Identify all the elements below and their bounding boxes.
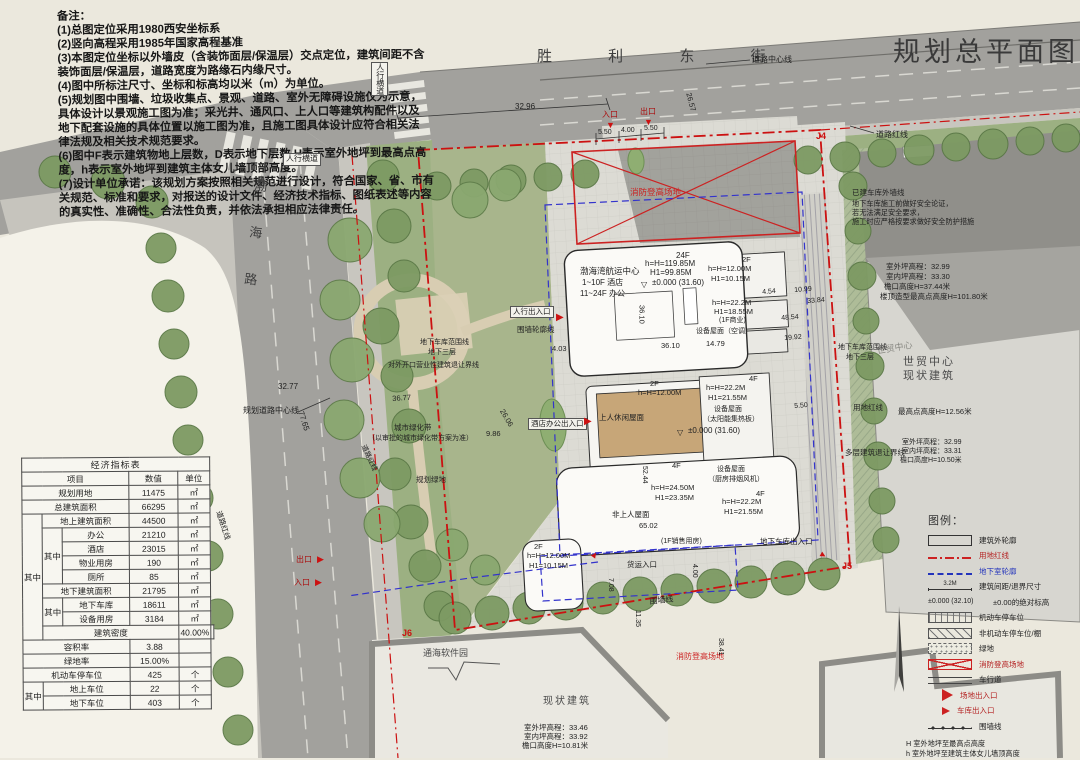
- tree-icon: [409, 550, 441, 582]
- econ-row-value: 3.88: [130, 639, 179, 653]
- econ-row-label: 机动车停车位: [23, 667, 130, 682]
- econ-row-label: 容积率: [23, 639, 130, 654]
- econ-qizhong: 其中: [22, 514, 43, 640]
- econ-row-unit: ㎡: [178, 485, 210, 499]
- tree-icon: [1016, 127, 1044, 155]
- bike-parking-icon: [928, 628, 972, 639]
- red-line-icon: [928, 557, 972, 559]
- tree-icon: [830, 142, 860, 172]
- econ-row-unit: ㎡: [178, 555, 210, 569]
- lower-building-4f: [556, 455, 801, 556]
- econ-row-value: 18611: [130, 597, 179, 611]
- legend-item: 消防登高场地: [928, 657, 1078, 671]
- tree-icon: [697, 569, 731, 603]
- econ-row-label: 酒店: [62, 541, 129, 555]
- tree-icon: [848, 262, 876, 290]
- drawing-title: 规划总平面图: [893, 30, 1079, 69]
- econ-row-unit: ㎡: [178, 527, 210, 541]
- econ-row-value: 3184: [130, 611, 179, 625]
- tree-icon: [379, 458, 411, 490]
- tree-icon: [978, 129, 1008, 159]
- tree-icon: [470, 555, 500, 585]
- basement-outline-icon: [928, 573, 972, 575]
- tree-icon: [392, 409, 426, 443]
- econ-row-unit: ㎡: [179, 611, 211, 625]
- econ-row-unit: ㎡: [179, 583, 211, 597]
- econ-row-unit: 个: [179, 667, 211, 681]
- econ-row-value: 22: [130, 681, 179, 695]
- tree-icon: [324, 400, 364, 440]
- econ-row-value: 425: [130, 667, 179, 681]
- econ-header-item: 项目: [22, 471, 129, 486]
- econ-row-label: 地下建筑面积: [43, 583, 130, 598]
- econ-row-value: 44500: [129, 513, 178, 527]
- legend-item: 3.2M建筑间距/退界尺寸: [928, 580, 1078, 594]
- tree-icon: [808, 558, 840, 590]
- econ-row-label: 办公: [62, 527, 129, 541]
- tree-icon: [152, 280, 184, 312]
- building-outline-icon: [928, 535, 972, 546]
- economic-indicator-table: 经济指标表 项目 数值 单位 规划用地11475㎡ 总建筑面积66295㎡ 其中…: [21, 456, 215, 710]
- tree-icon: [853, 308, 879, 334]
- econ-row-value: 15.00%: [130, 653, 179, 667]
- econ-row-label: 地下车库: [63, 597, 130, 611]
- tree-icon: [439, 602, 471, 634]
- legend-item: 场地出入口: [928, 688, 1078, 702]
- legend-item: 非机动车停车位/棚: [928, 626, 1078, 640]
- tree-icon: [869, 488, 895, 514]
- econ-qizhong: 其中: [43, 598, 63, 626]
- tree-icon: [873, 527, 899, 553]
- econ-row-label: 建筑密度: [43, 625, 179, 640]
- legend-item: 绿地: [928, 642, 1078, 656]
- econ-row-value: 190: [129, 555, 178, 569]
- econ-table-title: 经济指标表: [22, 457, 210, 472]
- car-parking-icon: [928, 612, 972, 623]
- econ-row-unit: 个: [179, 695, 211, 709]
- econ-row-value: 85: [129, 569, 178, 583]
- econ-row-value: 23015: [129, 541, 178, 555]
- econ-row-unit: ㎡: [178, 499, 210, 513]
- legend-note: h 室外地坪至建筑主体女儿墙顶高度: [906, 749, 1078, 759]
- econ-row-label: 总建筑面积: [22, 499, 129, 514]
- tree-icon: [159, 329, 189, 359]
- econ-row-label: 绿地率: [23, 653, 130, 668]
- tree-icon: [223, 715, 253, 745]
- legend-note: H 室外地坪至最高点高度: [906, 739, 1078, 749]
- main-tower-24f: [564, 241, 749, 377]
- econ-header-unit: 单位: [178, 471, 210, 485]
- econ-row-label: 规划用地: [22, 485, 129, 500]
- tree-icon: [320, 280, 360, 320]
- legend-title: 图例：: [928, 512, 1078, 528]
- driveway-icon: [928, 677, 972, 684]
- econ-row-label: 物业用房: [62, 555, 129, 569]
- site-entrance-icon: [942, 689, 953, 701]
- econ-qizhong: 其中: [42, 528, 62, 584]
- econ-row-unit: [179, 653, 211, 667]
- econ-row-unit: 个: [179, 681, 211, 695]
- legend-item: ±0.000 (32.10)±0.00的绝对标高: [928, 595, 1078, 609]
- garage-entrance-icon: [942, 707, 950, 715]
- tree-icon: [868, 139, 896, 167]
- building-2f-southwest: [522, 538, 584, 611]
- econ-row-unit: ㎡: [179, 597, 211, 611]
- tree-icon: [839, 172, 867, 200]
- econ-row-unit: [179, 639, 211, 653]
- tree-icon: [794, 146, 822, 174]
- econ-row-label: 厕所: [62, 569, 129, 583]
- tree-icon: [1052, 124, 1080, 152]
- legend-item: 机动车停车位: [928, 611, 1078, 625]
- tree-icon: [436, 529, 468, 561]
- econ-row-unit: ㎡: [178, 541, 210, 555]
- legend-item: 车库出入口: [928, 704, 1078, 718]
- tree-icon: [942, 133, 970, 161]
- tree-icon: [845, 218, 871, 244]
- econ-row-value: 403: [130, 695, 179, 709]
- tree-icon: [388, 260, 420, 292]
- legend-panel: 图例： 建筑外轮廓 用地红线 地下室轮廓 3.2M建筑间距/退界尺寸 ±0.00…: [928, 512, 1078, 760]
- tree-icon: [735, 566, 767, 598]
- econ-row-label: 地上车位: [43, 681, 130, 696]
- econ-row-label: 地上建筑面积: [42, 513, 129, 528]
- econ-row-value: 66295: [129, 499, 178, 513]
- legend-item: 建筑外轮廓: [928, 533, 1078, 547]
- tree-icon: [146, 233, 176, 263]
- econ-row-value: 21210: [129, 527, 178, 541]
- tree-icon: [856, 352, 884, 380]
- econ-row-unit: ㎡: [178, 513, 210, 527]
- tree-icon: [173, 425, 203, 455]
- tree-icon: [328, 218, 372, 262]
- elevation-icon: ±0.000 (32.10): [928, 596, 986, 608]
- tree-icon: [381, 360, 413, 392]
- tree-icon: [861, 398, 887, 424]
- tree-icon: [623, 577, 657, 611]
- econ-row-value: 11475: [129, 485, 178, 499]
- dimension-icon: 3.2M: [928, 581, 972, 593]
- tree-icon: [364, 506, 400, 542]
- fire-lane-icon: [928, 659, 972, 670]
- econ-row-value: 21795: [130, 583, 179, 597]
- legend-notes: H 室外地坪至最高点高度h 室外地坪至建筑主体女儿墙顶高度H1室外地坪至屋顶结构…: [906, 739, 1078, 760]
- green-space-icon: [928, 643, 972, 654]
- econ-qizhong: 其中: [23, 682, 43, 710]
- master-plan-canvas: 备注：(1)总图定位采用1980西安坐标系(2)竖向高程采用1985年国家高程基…: [0, 0, 1080, 760]
- tree-icon: [340, 458, 380, 498]
- econ-header-value: 数值: [129, 471, 178, 485]
- wall-line-icon: [928, 726, 972, 730]
- tree-icon: [904, 135, 934, 165]
- tree-icon: [165, 376, 197, 408]
- econ-row-value: 40.00%: [179, 625, 211, 639]
- tree-icon: [661, 574, 693, 606]
- tree-icon: [363, 308, 399, 344]
- tree-icon: [864, 442, 892, 470]
- econ-row-unit: [211, 625, 214, 639]
- legend-item: 地下室轮廓: [928, 564, 1078, 578]
- econ-row-unit: ㎡: [178, 569, 210, 583]
- econ-row-label: 设备用房: [63, 611, 130, 625]
- legend-item: 用地红线: [928, 549, 1078, 563]
- notes-block: 备注：(1)总图定位采用1980西安坐标系(2)竖向高程采用1985年国家高程基…: [57, 2, 765, 219]
- tree-icon: [213, 657, 243, 687]
- legend-item: 围墙线: [928, 719, 1078, 733]
- econ-row-label: 地下车位: [43, 695, 130, 710]
- legend-item: 车行道: [928, 673, 1078, 687]
